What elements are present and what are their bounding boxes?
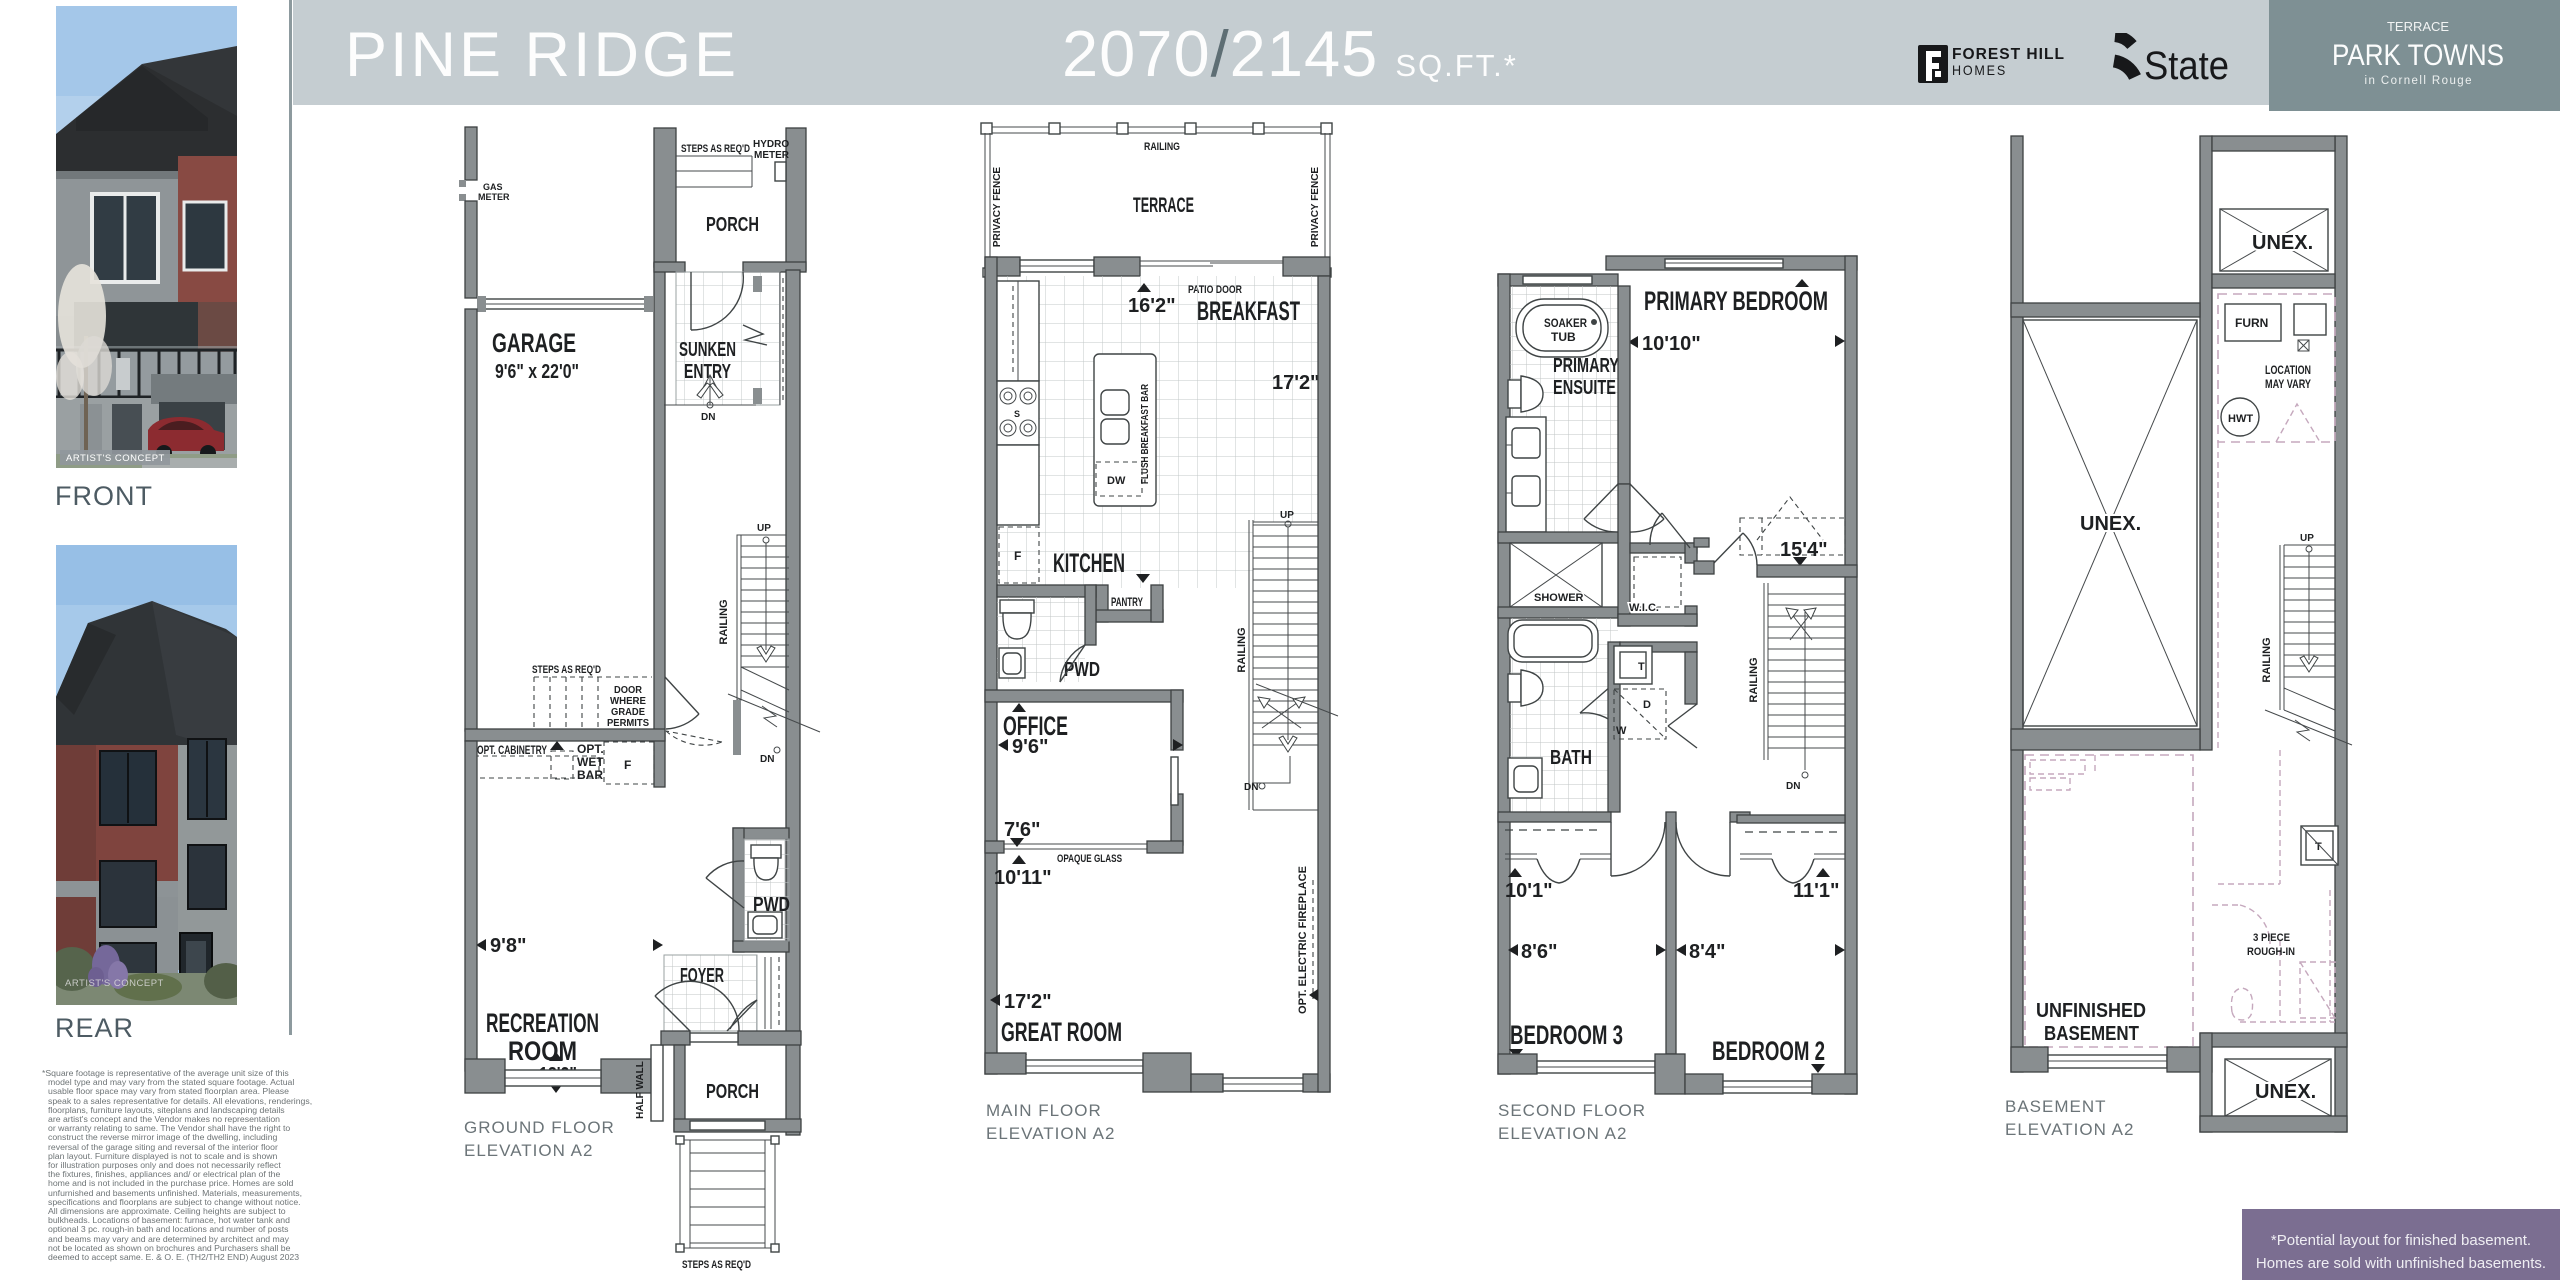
svg-text:UNFINISHED: UNFINISHED: [2036, 1000, 2146, 1022]
svg-text:HYDRO: HYDRO: [753, 139, 789, 150]
svg-text:MAIN FLOOR: MAIN FLOOR: [986, 1101, 1102, 1120]
svg-text:8'4": 8'4": [1689, 941, 1725, 963]
svg-text:UP: UP: [1280, 510, 1294, 521]
svg-text:W.I.C.: W.I.C.: [1629, 602, 1659, 614]
svg-text:17'2": 17'2": [1272, 372, 1320, 394]
svg-text:9'8": 9'8": [490, 935, 526, 957]
svg-text:3 PIECE: 3 PIECE: [2253, 932, 2290, 944]
svg-text:SOAKER: SOAKER: [1544, 316, 1587, 330]
svg-text:PRIVACY FENCE: PRIVACY FENCE: [992, 167, 1003, 248]
svg-text:16'2": 16'2": [1128, 295, 1176, 317]
svg-text:D: D: [1643, 699, 1651, 711]
svg-text:WET: WET: [577, 755, 604, 769]
svg-text:ROUGH-IN: ROUGH-IN: [2247, 946, 2295, 958]
svg-text:UP: UP: [2300, 533, 2314, 544]
svg-text:10'1": 10'1": [1505, 880, 1553, 902]
svg-text:RAILING: RAILING: [718, 599, 730, 644]
svg-text:PORCH: PORCH: [706, 1081, 759, 1103]
svg-text:PRIVACY FENCE: PRIVACY FENCE: [1310, 167, 1321, 248]
svg-text:RECREATION: RECREATION: [486, 1008, 599, 1038]
svg-text:F: F: [624, 758, 631, 772]
svg-text:STEPS AS REQ'D: STEPS AS REQ'D: [681, 143, 750, 155]
svg-text:UNEX.: UNEX.: [2252, 232, 2313, 254]
svg-text:BEDROOM 3: BEDROOM 3: [1510, 1020, 1623, 1050]
svg-text:SECOND FLOOR: SECOND FLOOR: [1498, 1101, 1646, 1120]
svg-text:ELEVATION A2: ELEVATION A2: [1498, 1124, 1627, 1143]
svg-text:GAS: GAS: [483, 182, 503, 192]
svg-text:DN: DN: [1786, 781, 1800, 792]
svg-text:BASEMENT: BASEMENT: [2044, 1023, 2139, 1045]
svg-text:OPT. ELECTRIC FIREPLACE: OPT. ELECTRIC FIREPLACE: [1297, 866, 1309, 1014]
svg-text:OPT.: OPT.: [577, 742, 604, 756]
svg-text:RAILING: RAILING: [1144, 141, 1180, 153]
svg-text:METER: METER: [478, 192, 510, 202]
svg-text:FOYER: FOYER: [680, 965, 724, 987]
svg-text:UNEX.: UNEX.: [2255, 1081, 2316, 1103]
svg-text:HWT: HWT: [2228, 413, 2253, 425]
svg-text:FLUSH BREAKFAST BAR: FLUSH BREAKFAST BAR: [1139, 384, 1151, 484]
svg-text:GARAGE: GARAGE: [492, 328, 576, 358]
svg-text:PORCH: PORCH: [706, 214, 759, 236]
svg-text:UNEX.: UNEX.: [2080, 513, 2141, 535]
svg-text:BREAKFAST: BREAKFAST: [1197, 296, 1300, 326]
svg-text:BAR: BAR: [577, 768, 603, 782]
svg-text:PWD: PWD: [753, 894, 790, 916]
svg-text:PANTRY: PANTRY: [1111, 595, 1143, 609]
svg-text:FURN: FURN: [2235, 316, 2268, 330]
svg-text:PRIMARY: PRIMARY: [1553, 355, 1619, 377]
svg-text:SHOWER: SHOWER: [1534, 592, 1584, 604]
svg-text:BEDROOM 2: BEDROOM 2: [1712, 1036, 1825, 1066]
svg-text:RAILING: RAILING: [1748, 657, 1760, 702]
svg-text:MAY VARY: MAY VARY: [2265, 377, 2311, 391]
svg-text:GROUND FLOOR: GROUND FLOOR: [464, 1118, 615, 1137]
svg-text:10'11": 10'11": [994, 867, 1052, 889]
svg-text:17'2": 17'2": [1004, 991, 1052, 1013]
svg-text:KITCHEN: KITCHEN: [1053, 548, 1125, 578]
svg-text:T: T: [1638, 661, 1645, 673]
svg-text:HALF WALL: HALF WALL: [635, 1061, 646, 1119]
svg-text:METER: METER: [754, 150, 790, 161]
svg-text:PERMITS: PERMITS: [607, 717, 649, 729]
svg-text:OPAQUE GLASS: OPAQUE GLASS: [1057, 853, 1122, 865]
svg-text:BASEMENT: BASEMENT: [2005, 1097, 2107, 1116]
svg-text:RAILING: RAILING: [2261, 637, 2273, 682]
svg-text:DN: DN: [760, 754, 774, 765]
svg-text:OPT. CABINETRY: OPT. CABINETRY: [477, 743, 547, 757]
svg-text:ELEVATION A2: ELEVATION A2: [464, 1141, 593, 1160]
svg-text:9'6" x 22'0": 9'6" x 22'0": [495, 361, 579, 383]
svg-text:ELEVATION A2: ELEVATION A2: [2005, 1120, 2134, 1139]
svg-text:10'10": 10'10": [1642, 333, 1701, 355]
svg-text:F: F: [1014, 549, 1021, 563]
svg-text:DN: DN: [1244, 782, 1258, 793]
svg-text:11'1": 11'1": [1793, 880, 1840, 902]
svg-text:S: S: [1014, 409, 1020, 419]
svg-text:W: W: [1616, 725, 1627, 737]
svg-text:SUNKEN: SUNKEN: [679, 339, 736, 361]
svg-text:DW: DW: [1107, 475, 1126, 487]
svg-text:LOCATION: LOCATION: [2265, 363, 2311, 377]
svg-text:TERRACE: TERRACE: [1133, 194, 1194, 217]
svg-text:GREAT ROOM: GREAT ROOM: [1001, 1017, 1122, 1047]
svg-text:TUB: TUB: [1551, 330, 1576, 344]
svg-text:UP: UP: [757, 523, 771, 534]
svg-text:7'6": 7'6": [1004, 819, 1040, 841]
svg-text:BATH: BATH: [1550, 747, 1592, 769]
svg-text:9'6": 9'6": [1012, 736, 1048, 758]
svg-text:ELEVATION A2: ELEVATION A2: [986, 1124, 1115, 1143]
svg-text:RAILING: RAILING: [1236, 627, 1248, 672]
svg-text:STEPS AS REQ'D: STEPS AS REQ'D: [532, 664, 601, 676]
svg-text:STEPS AS REQ'D: STEPS AS REQ'D: [682, 1259, 751, 1271]
svg-text:PWD: PWD: [1064, 659, 1100, 681]
svg-text:ENSUITE: ENSUITE: [1553, 377, 1616, 399]
svg-text:DN: DN: [701, 412, 715, 423]
svg-text:ROOM: ROOM: [508, 1036, 577, 1066]
svg-text:PRIMARY BEDROOM: PRIMARY BEDROOM: [1644, 286, 1828, 316]
svg-text:8'6": 8'6": [1521, 941, 1557, 963]
